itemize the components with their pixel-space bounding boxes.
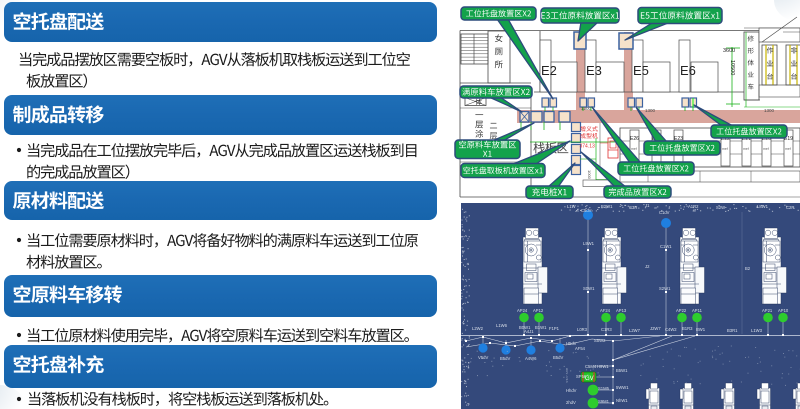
svg-text:E3: E3: [586, 63, 602, 78]
svg-text:B2: B2: [745, 266, 751, 271]
svg-text:5WW1: 5WW1: [616, 385, 629, 390]
svg-text:S9M1: S9M1: [598, 399, 610, 404]
svg-text:NhW1: NhW1: [616, 398, 628, 403]
svg-text:C5M4: C5M4: [585, 364, 597, 369]
svg-text:mef: mef: [785, 147, 791, 151]
svg-text:3600: 3600: [723, 48, 735, 54]
svg-text:AP13: AP13: [616, 308, 627, 313]
svg-text:B3R1: B3R1: [727, 328, 738, 333]
svg-text:HhdV: HhdV: [566, 388, 577, 393]
svg-text:E6: E6: [680, 63, 696, 78]
svg-text:C1R3: C1R3: [601, 327, 612, 332]
svg-text:A4J1: A4J1: [524, 329, 534, 334]
svg-text:V5dV: V5dV: [478, 355, 488, 360]
svg-text:S2W1: S2W1: [659, 286, 671, 291]
svg-text:GV: GV: [585, 376, 594, 382]
svg-text:C3R: C3R: [629, 205, 637, 210]
svg-text:AF54: AF54: [575, 346, 586, 351]
svg-text:L8W1: L8W1: [757, 204, 769, 209]
svg-text:J2W7: J2W7: [650, 326, 661, 331]
svg-text:L1W: L1W: [567, 204, 576, 209]
svg-text:1300: 1300: [764, 108, 775, 113]
svg-text:L2W7: L2W7: [629, 328, 641, 333]
svg-text:AP10: AP10: [778, 308, 789, 313]
svg-text:C2R: C2R: [786, 205, 794, 210]
svg-text:mef: mef: [722, 147, 728, 151]
svg-text:1300: 1300: [581, 106, 592, 111]
svg-text:C1W1: C1W1: [660, 244, 672, 249]
svg-text:E26: E26: [630, 136, 639, 142]
svg-text:2hdV: 2hdV: [566, 400, 576, 405]
svg-text:E2: E2: [541, 63, 557, 78]
svg-text:mef: mef: [743, 147, 749, 151]
svg-text:S0W1: S0W1: [583, 286, 595, 291]
svg-text:B1R3: B1R3: [682, 326, 693, 331]
svg-text:B5W1: B5W1: [616, 368, 628, 373]
svg-text:AP11: AP11: [692, 308, 703, 313]
svg-text:B1W1: B1W1: [535, 325, 547, 330]
svg-text:AGV-01S: AGV-01S: [564, 368, 568, 383]
svg-text:mef: mef: [631, 147, 637, 151]
svg-text:1300: 1300: [645, 108, 656, 113]
svg-text:A4W6: A4W6: [525, 356, 537, 361]
svg-text:AP12: AP12: [533, 308, 544, 313]
svg-text:10500: 10500: [729, 60, 735, 75]
svg-text:J2: J2: [645, 264, 650, 269]
svg-text:C4W2: C4W2: [665, 327, 677, 332]
svg-text:L0R3: L0R3: [577, 327, 588, 332]
svg-text:L2W2: L2W2: [472, 326, 484, 331]
svg-text:L9W1: L9W1: [583, 241, 595, 246]
svg-text:B5dV: B5dV: [500, 356, 510, 361]
svg-text:B5dV: B5dV: [553, 355, 563, 360]
svg-text:S2W: S2W: [716, 205, 725, 210]
svg-text:F1P1: F1P1: [549, 326, 560, 331]
svg-text:H9W1: H9W1: [597, 364, 609, 369]
svg-text:BW1: BW1: [696, 327, 706, 332]
svg-text:L1W6: L1W6: [496, 323, 508, 328]
svg-text:374.13: 374.13: [580, 144, 596, 150]
svg-text:1000: 1000: [587, 170, 592, 180]
svg-text:AP24: AP24: [517, 308, 528, 313]
svg-text:AF24: AF24: [600, 308, 611, 313]
svg-text:E5: E5: [633, 63, 649, 78]
svg-text:mef: mef: [763, 147, 769, 151]
svg-text:L1W3: L1W3: [751, 328, 763, 333]
svg-text:C1dV: C1dV: [659, 210, 670, 215]
svg-text:AP22: AP22: [676, 308, 687, 313]
svg-text:AP21: AP21: [762, 308, 773, 313]
svg-text:S1M5: S1M5: [598, 386, 610, 391]
svg-text:S5W2: S5W2: [594, 338, 606, 343]
svg-text:A1R2: A1R2: [688, 204, 699, 209]
